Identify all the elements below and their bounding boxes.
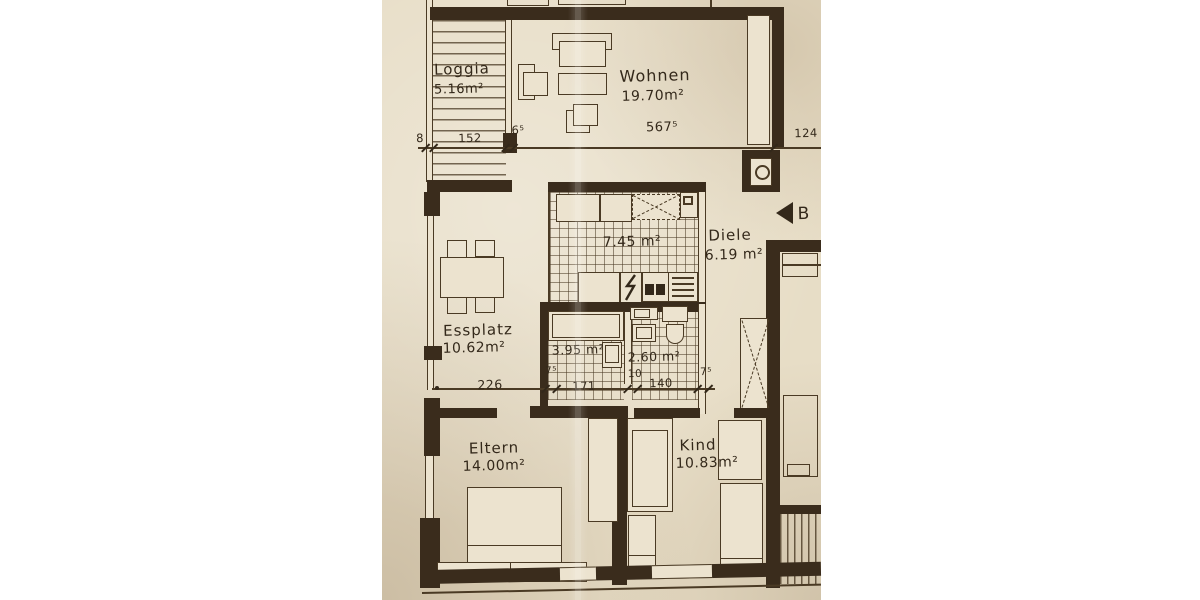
dim-567-5: 567⁵ [646,120,678,136]
section-arrow-icon [776,202,793,224]
coffee-table [558,73,607,95]
diele-name-label: Diele [708,225,752,244]
loggia-right-window-wall [505,18,512,134]
entry-side-wall [772,240,821,252]
corner-appliance-knob [683,196,693,205]
toilet-tank [662,306,688,322]
wc-washbasin-inner [636,327,652,339]
toilet-bowl [666,324,684,344]
bedroom-top-wall [430,408,497,418]
wohnen-name-label: Wohnen [619,65,690,86]
loggia-bottom-wall [427,180,512,192]
kitchen-left-line [548,192,550,310]
kind-name-label: Kind [679,436,717,455]
eltern-left-wall [424,398,440,456]
eltern-wardrobe [588,418,618,522]
dim-dot [435,386,439,390]
dim-6-5: 6⁵ [511,123,524,137]
dining-chair [475,240,495,257]
essplatz-window [427,216,434,346]
wall-stub [424,346,442,360]
bed-foot-line [468,545,561,546]
vent-lines-icon [672,277,694,297]
dim-7-5-right: 7⁵ [700,366,712,378]
kitchen-counter [600,194,632,222]
neighbor-sideboard [782,253,818,277]
dim-7-5-left: 7⁵ [545,365,557,377]
dining-chair [475,297,495,313]
bedroom-top-wall [634,408,700,418]
bedroom-top-wall [734,408,770,418]
cabinet-line [629,555,655,556]
kueche-area-label: 7.45 m² [603,233,662,251]
floorplan-photo-page: 8 152 6⁵ 567⁵ 124 7.45 m² Essplatz 10.62… [0,0,1200,600]
dining-table [440,257,504,298]
bathtub-inner [552,314,620,338]
eltern-window [425,456,434,518]
eltern-name-label: Eltern [469,438,520,457]
upper-structure-tick [710,0,712,7]
photo-crease [575,0,581,600]
wall-stub [424,192,440,216]
dim-124: 124 [794,126,818,141]
photo-bottom-line [422,584,821,594]
essplatz-name-label: Essplatz [443,320,513,340]
kitchen-top-wall [548,182,706,192]
loggia-left-wall [426,0,433,182]
essplatz-window [427,360,434,390]
essplatz-area-label: 10.62m² [442,339,505,357]
sink-basin [656,284,665,295]
desk-line [721,558,762,559]
upper-structure-outline [558,0,626,5]
stove [620,272,642,305]
diele-area-label: 6.19 m² [705,246,764,264]
dimension-line-top [418,147,821,149]
kind-area-label: 10.83m² [675,454,738,472]
neighbor-bed-pillow [787,464,810,476]
kind-wardrobe [718,420,762,480]
kind-bed-inner [632,430,668,507]
stair-wall [772,505,821,514]
radiator-niche [747,15,770,145]
bad-left-wall [540,302,548,414]
wohnen-area-label: 19.70m² [621,87,684,105]
wohnen-right-wall [772,7,784,148]
armchair-left-seat [523,72,548,96]
sink-basin [645,284,654,295]
loggia-hatched-floor [428,20,506,180]
dim-152: 152 [458,131,482,146]
wc-cistern-inner [634,309,650,318]
upper-structure-outline [507,0,549,6]
eltern-double-bed [467,487,562,565]
sofa-seat [559,41,606,67]
electric-bolt-icon [622,273,641,302]
bad-washbasin-inner [605,345,619,363]
top-facade-wall [430,7,784,20]
dim-10: 10 [628,368,643,380]
floorplan-photo: 8 152 6⁵ 567⁵ 124 7.45 m² Essplatz 10.62… [382,0,821,600]
dim-226: 226 [477,377,503,393]
dim-8: 8 [416,131,424,145]
bottom-window [652,564,712,579]
eltern-area-label: 14.00m² [462,457,525,475]
loggia-name-label: Loggia [434,59,490,78]
kitchen-lower-counter [578,272,620,305]
pipe-circle-icon [755,165,770,180]
loggia-area-label: 5.16m² [434,81,484,97]
section-marker-label: B [797,204,810,224]
wc-area-label: 2.60 m² [628,348,681,364]
dining-chair [447,240,467,258]
wc-right-wall [698,304,706,414]
dining-chair [447,297,467,314]
dim-140: 140 [649,376,673,391]
